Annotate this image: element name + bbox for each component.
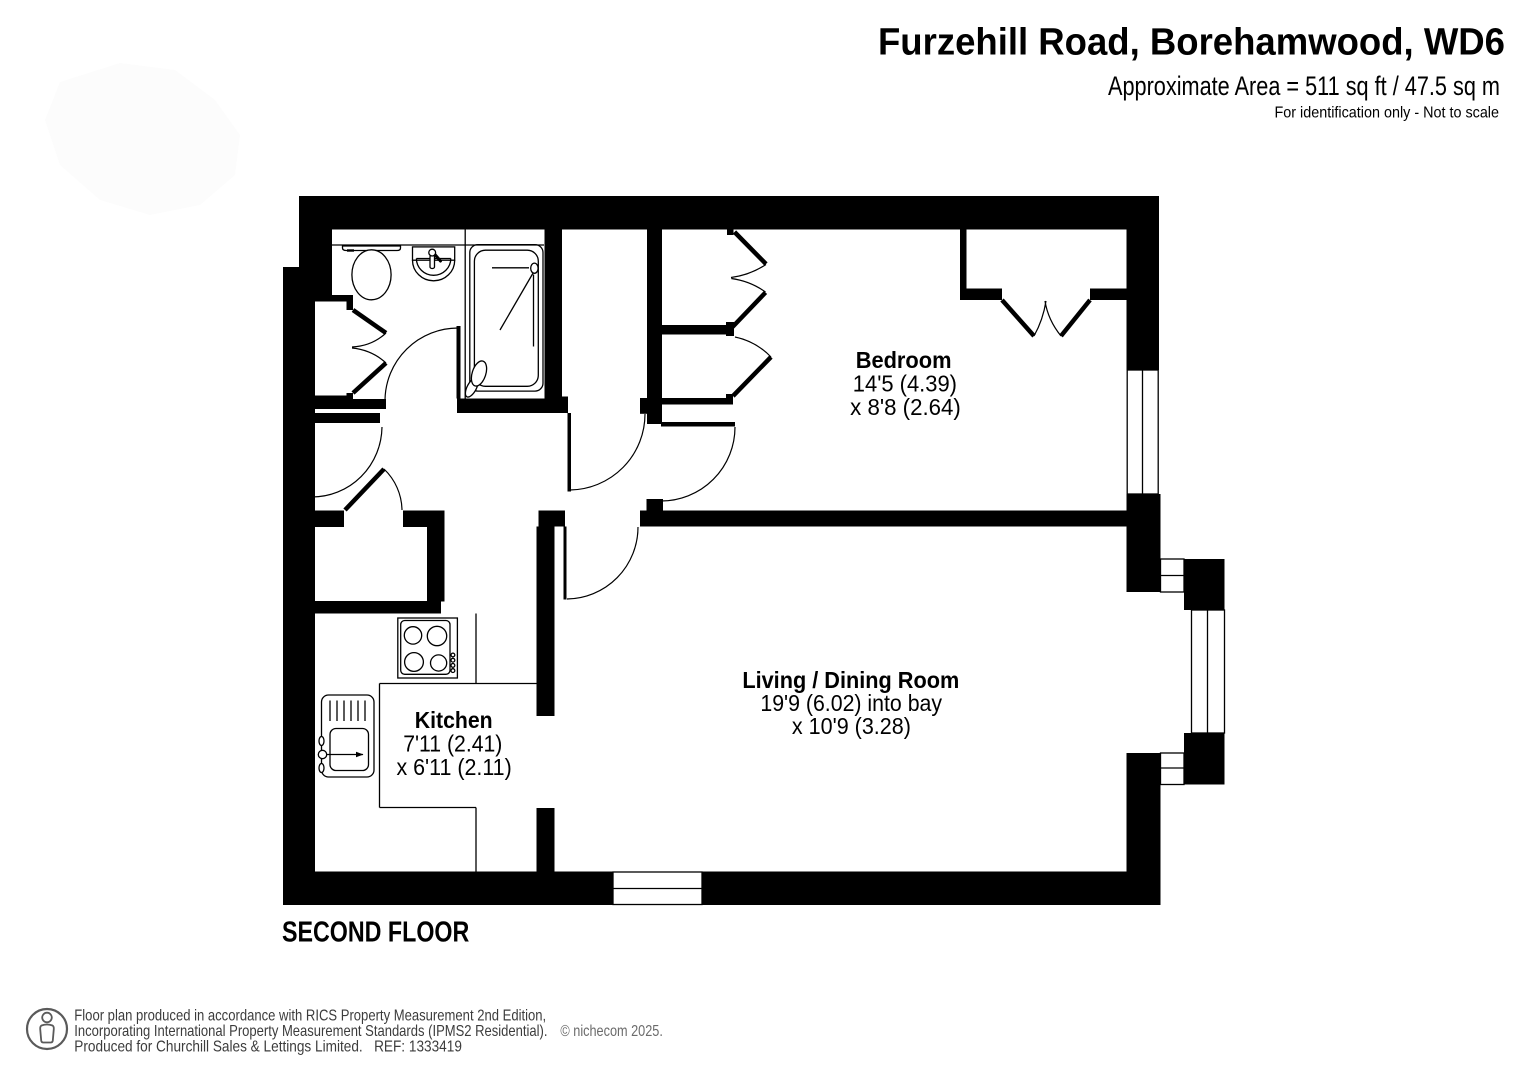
svg-text:x 6'11 (2.11): x 6'11 (2.11) — [396, 754, 511, 780]
svg-text:SECOND FLOOR: SECOND FLOOR — [282, 917, 469, 949]
svg-text:Approximate Area = 511 sq ft /: Approximate Area = 511 sq ft / 47.5 sq m — [1108, 71, 1500, 101]
svg-text:x 10'9 (3.28): x 10'9 (3.28) — [792, 713, 911, 739]
svg-text:Furzehill Road, Borehamwood, W: Furzehill Road, Borehamwood, WD6 — [878, 21, 1505, 63]
svg-text:x 8'8 (2.64): x 8'8 (2.64) — [850, 394, 961, 420]
svg-text:Kitchen: Kitchen — [415, 707, 493, 733]
svg-text:Bedroom: Bedroom — [856, 347, 952, 373]
svg-text:14'5 (4.39): 14'5 (4.39) — [853, 370, 957, 396]
svg-text:Produced for Churchill Sales &: Produced for Churchill Sales & Lettings … — [74, 1038, 462, 1055]
svg-text:7'11 (2.41): 7'11 (2.41) — [403, 730, 502, 756]
svg-text:Floor plan produced in accorda: Floor plan produced in accordance with R… — [74, 1007, 546, 1024]
svg-text:For identification only - Not: For identification only - Not to scale — [1275, 104, 1500, 121]
svg-text:19'9 (6.02) into bay: 19'9 (6.02) into bay — [760, 690, 942, 716]
svg-text:© nichecom 2025.: © nichecom 2025. — [560, 1023, 663, 1040]
svg-text:Incorporating International Pr: Incorporating International Property Mea… — [74, 1023, 547, 1040]
